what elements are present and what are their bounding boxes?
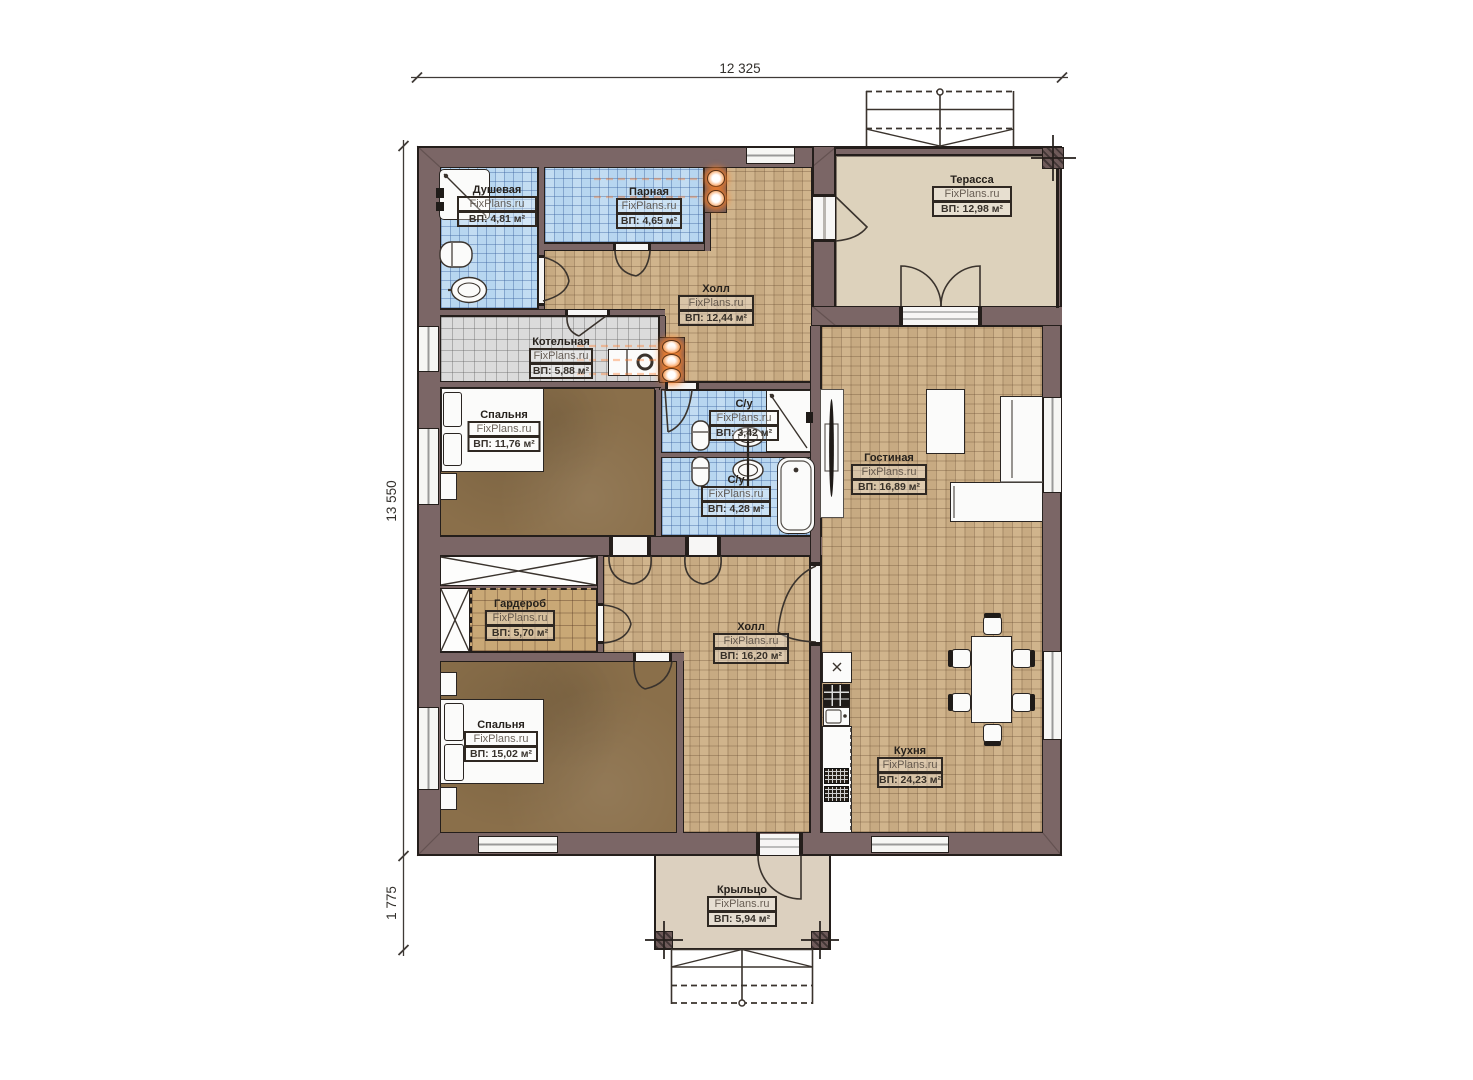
svg-text:13 550: 13 550 [384,480,399,521]
svg-text:1 775: 1 775 [384,886,399,920]
svg-text:12 325: 12 325 [719,61,760,76]
